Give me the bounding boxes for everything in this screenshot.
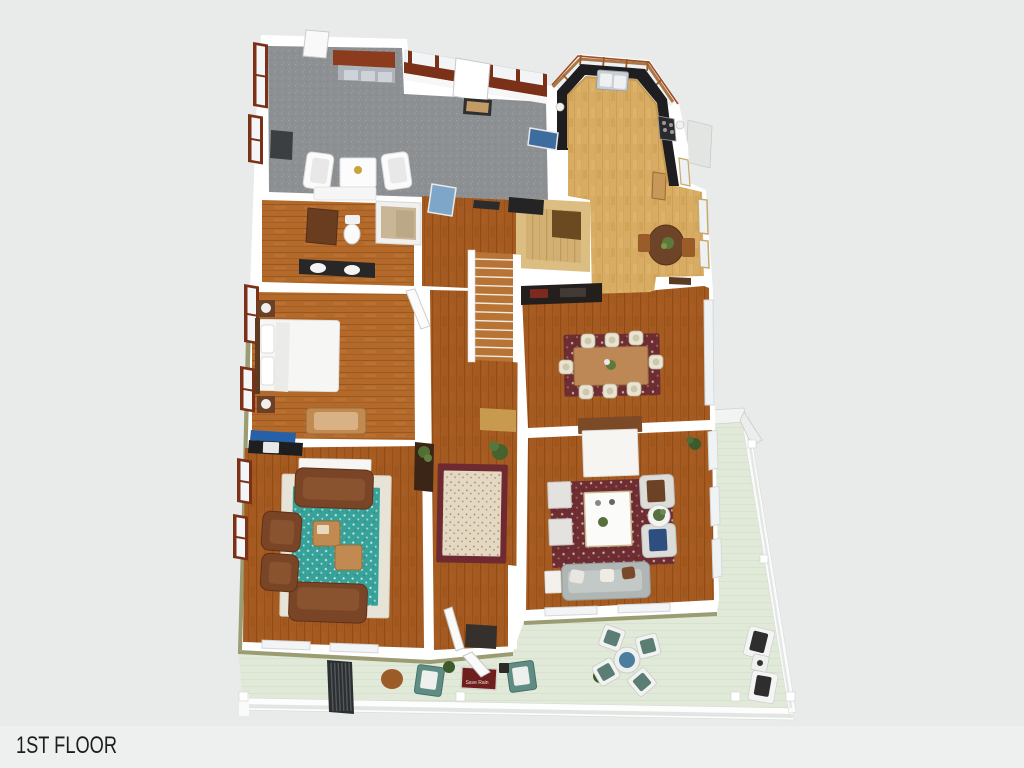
svg-text:Save Rain: Save Rain	[465, 680, 488, 686]
svg-text:1ST FLOOR: 1ST FLOOR	[16, 732, 117, 759]
